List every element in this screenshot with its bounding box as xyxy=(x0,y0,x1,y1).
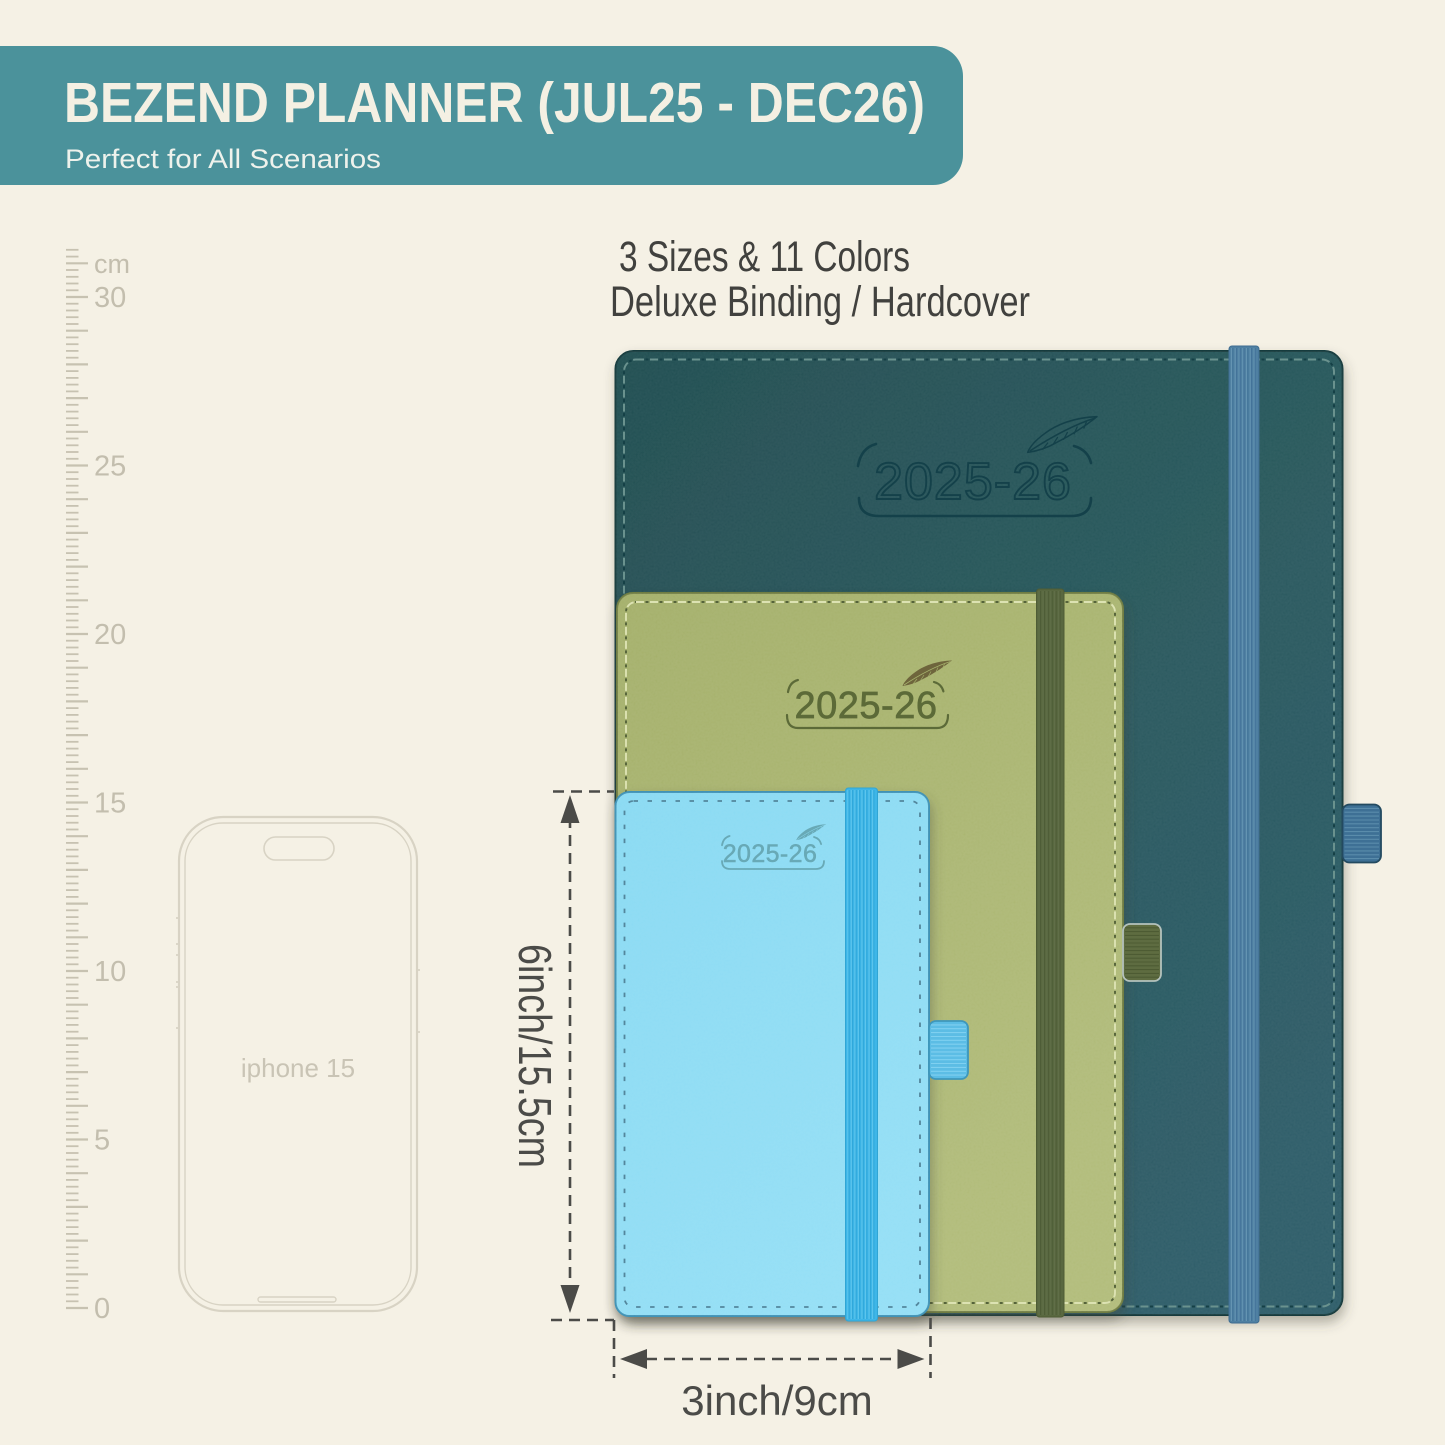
svg-text:30: 30 xyxy=(94,282,126,314)
svg-text:5: 5 xyxy=(94,1125,110,1157)
svg-text:cm: cm xyxy=(94,249,130,279)
svg-text:Perfect for All Scenarios: Perfect for All Scenarios xyxy=(65,144,381,174)
svg-text:3inch/9cm: 3inch/9cm xyxy=(681,1377,872,1424)
svg-text:2025-26: 2025-26 xyxy=(795,685,938,727)
svg-text:0: 0 xyxy=(94,1293,110,1325)
svg-text:iphone 15: iphone 15 xyxy=(241,1053,355,1083)
svg-text:2025-26: 2025-26 xyxy=(874,453,1072,511)
svg-text:Deluxe Binding / Hardcover: Deluxe Binding / Hardcover xyxy=(610,278,1030,326)
svg-text:2025-26: 2025-26 xyxy=(723,840,818,868)
svg-text:3 Sizes & 11 Colors: 3 Sizes & 11 Colors xyxy=(619,233,910,281)
svg-text:10: 10 xyxy=(94,956,126,988)
svg-text:25: 25 xyxy=(94,451,126,483)
svg-text:BEZEND PLANNER (JUL25 - DEC26): BEZEND PLANNER (JUL25 - DEC26) xyxy=(64,71,925,135)
svg-text:20: 20 xyxy=(94,619,126,651)
svg-text:15: 15 xyxy=(94,788,126,820)
svg-text:6inch/15.5cm: 6inch/15.5cm xyxy=(509,944,561,1168)
